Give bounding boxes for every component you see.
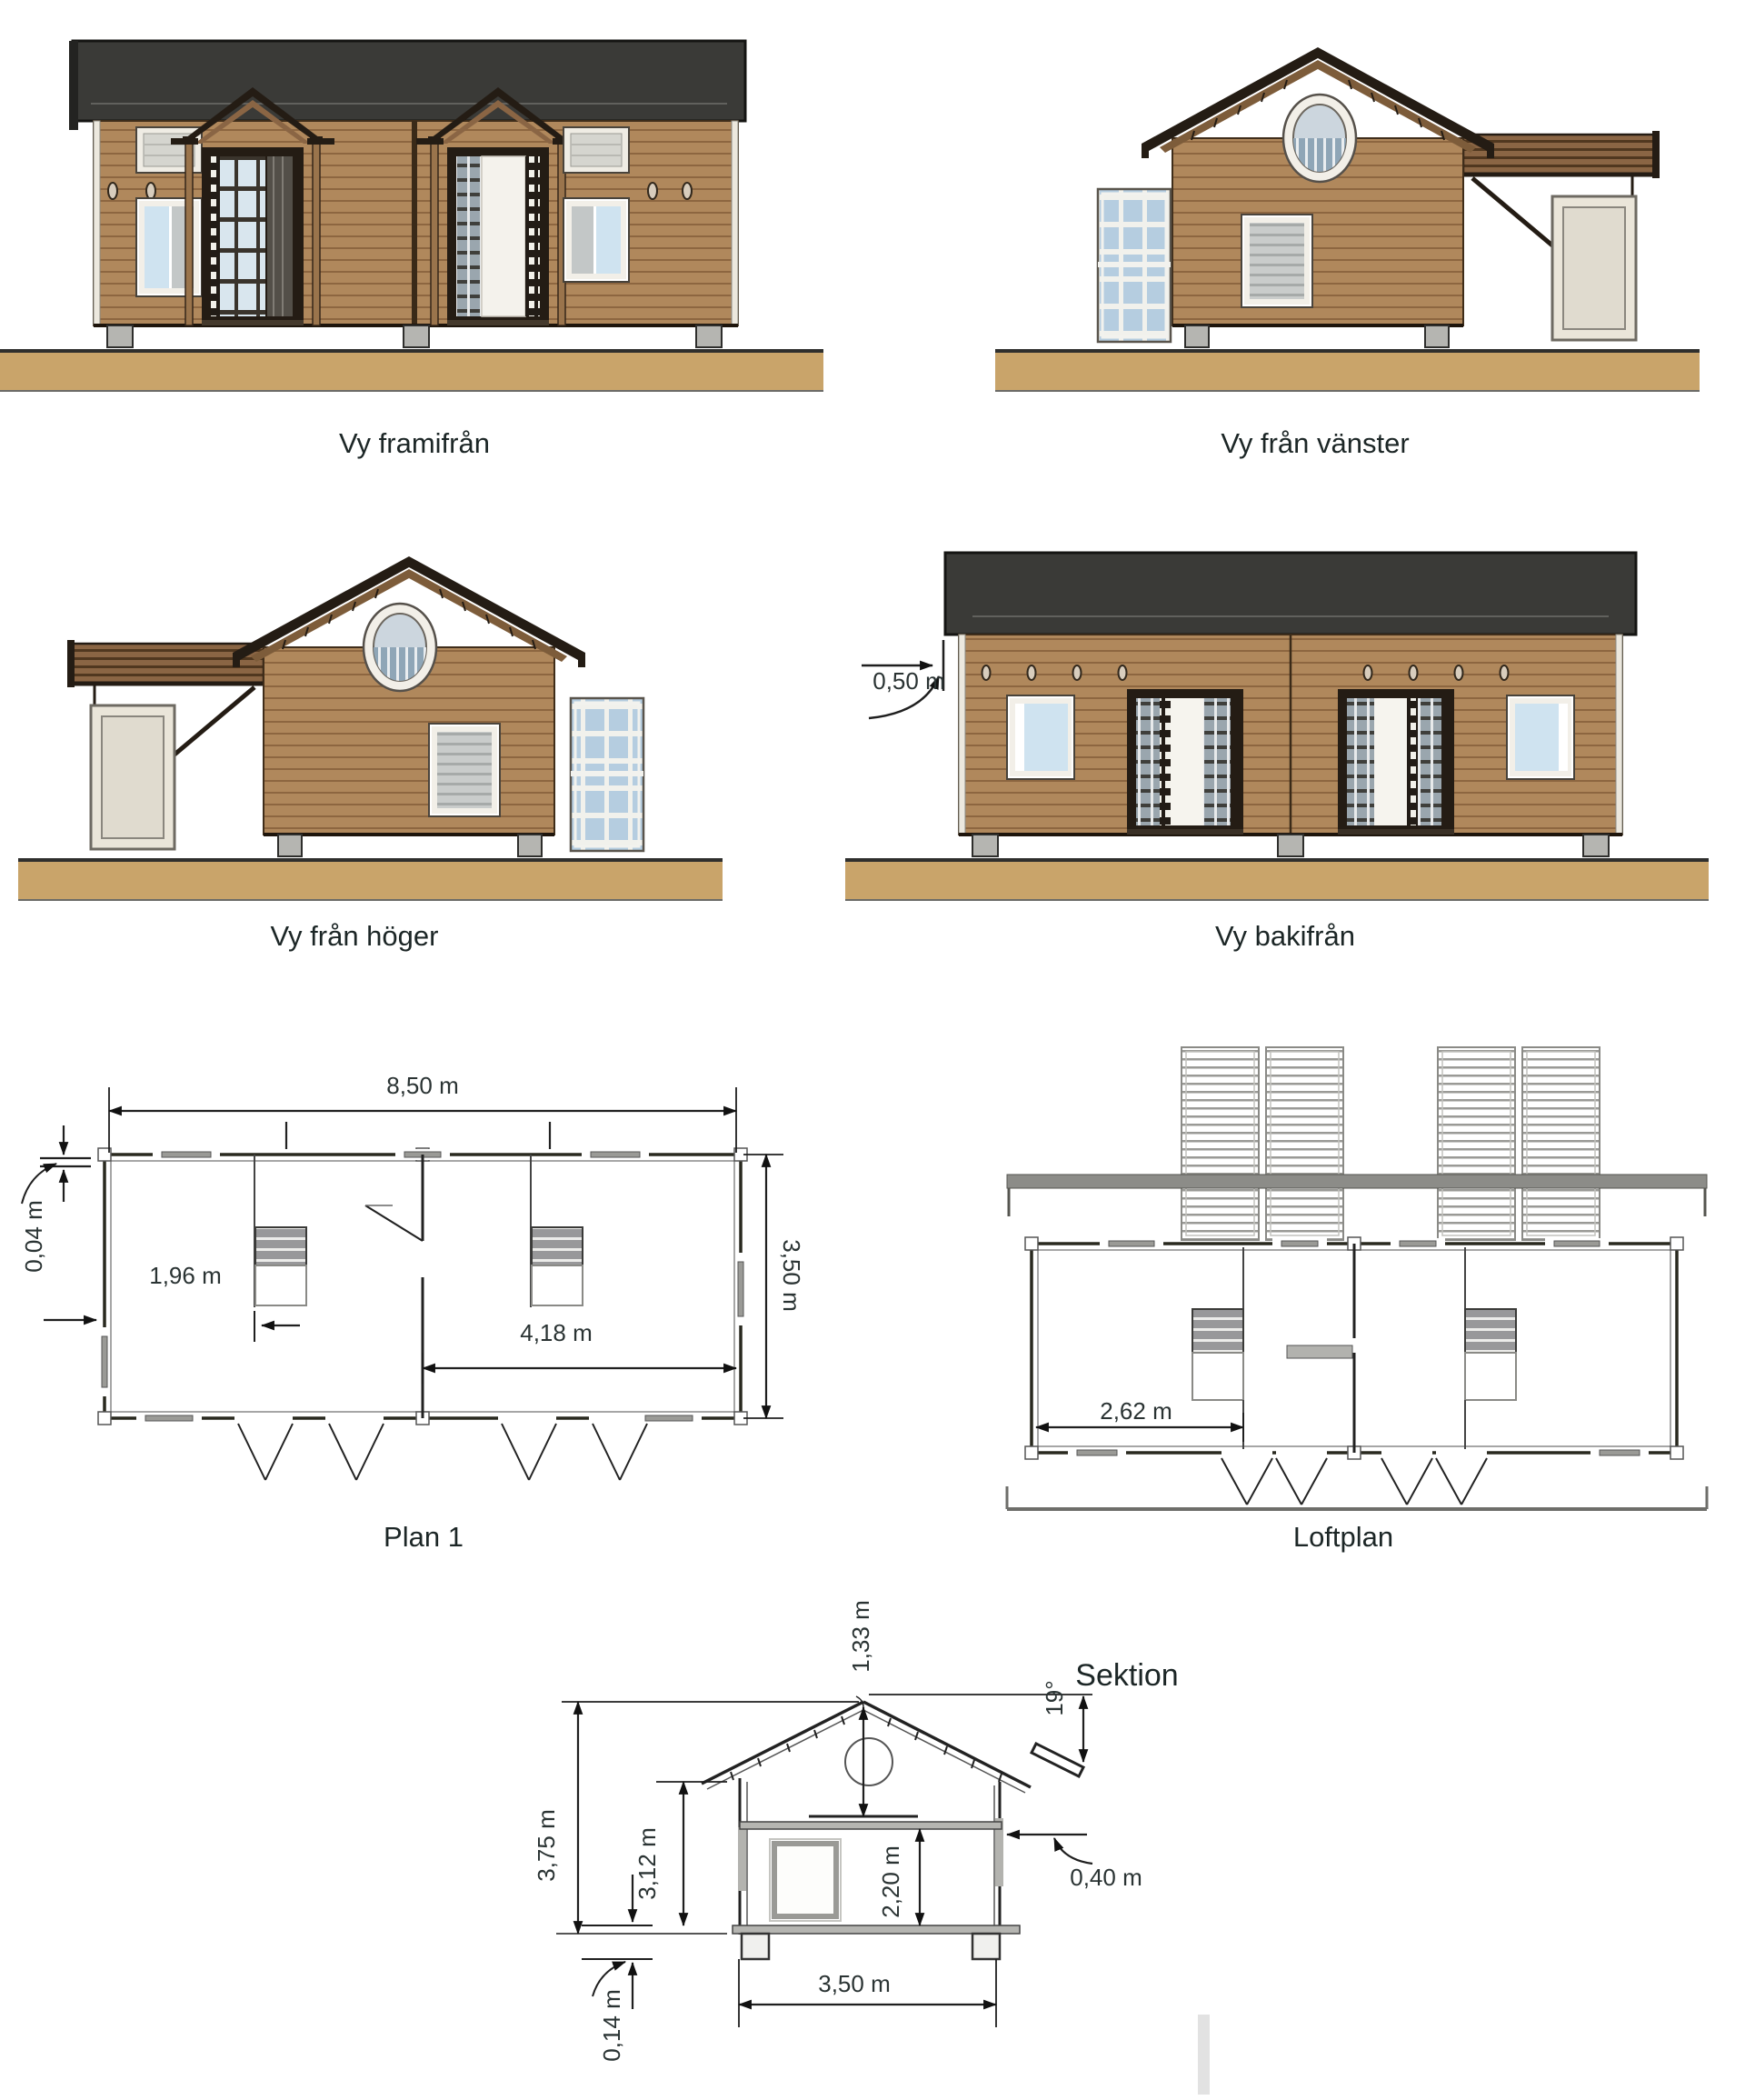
right-open-door bbox=[91, 705, 174, 849]
left-view-drawing bbox=[982, 36, 1745, 409]
loft-width-dimension: 2,62 m bbox=[1072, 1398, 1200, 1424]
back-view-drawing bbox=[836, 545, 1745, 918]
scan-artifact bbox=[1198, 2015, 1210, 2095]
back-view-label: Vy bakifrån bbox=[1140, 920, 1431, 953]
front-window-right bbox=[563, 198, 629, 282]
right-trellis-panel bbox=[571, 698, 643, 851]
section-roof bbox=[702, 1702, 1083, 1793]
section-round-window bbox=[845, 1738, 892, 1785]
loft-pergola-panels bbox=[1182, 1047, 1600, 1240]
right-view-drawing bbox=[18, 545, 745, 918]
back-glazed-door-right bbox=[1338, 689, 1454, 835]
loft-deck-rail-top bbox=[1007, 1175, 1707, 1216]
loft-deck-rail-bottom bbox=[1007, 1486, 1707, 1509]
left-open-door bbox=[1552, 196, 1636, 340]
plan1-depth-dimension: 3,50 m bbox=[779, 1212, 804, 1339]
front-transom-window-right bbox=[563, 127, 629, 173]
loftplan-label: Loftplan bbox=[1198, 1521, 1489, 1554]
loft-door-swings bbox=[1221, 1458, 1487, 1505]
section-width-dimension: 3,50 m bbox=[791, 1971, 918, 1996]
back-window-left bbox=[1007, 695, 1074, 779]
right-footings bbox=[278, 835, 542, 856]
back-roof bbox=[945, 553, 1636, 635]
right-ground bbox=[18, 860, 723, 900]
plan1-total-width-dimension: 8,50 m bbox=[359, 1073, 486, 1098]
plan1-right-section-dimension: 4,18 m bbox=[493, 1320, 620, 1345]
left-footings bbox=[1185, 325, 1449, 347]
back-footings bbox=[972, 835, 1609, 856]
plan1-label: Plan 1 bbox=[278, 1521, 569, 1554]
right-oval-window bbox=[364, 604, 436, 691]
front-ground bbox=[0, 351, 823, 391]
section-total-height-dimension: 3,75 m bbox=[533, 1782, 559, 1909]
section-overhang-dimension: 0,40 m bbox=[1042, 1865, 1170, 1890]
left-view-label: Vy från vänster bbox=[1170, 427, 1461, 460]
back-glazed-door-left bbox=[1127, 689, 1243, 835]
plan1-door-swings bbox=[238, 1424, 647, 1480]
section-ridge-dimension: 1,33 m bbox=[848, 1573, 873, 1700]
front-elevation-label: Vy framifrån bbox=[269, 427, 560, 460]
right-view-label: Vy från höger bbox=[209, 920, 500, 953]
loftplan-drawing bbox=[963, 1036, 1745, 1545]
section-base-dimension: 0,14 m bbox=[599, 1962, 624, 2089]
front-elevation-drawing bbox=[0, 36, 836, 409]
drawing-sheet: Vy framifrån bbox=[0, 0, 1745, 2100]
plan1-drawing bbox=[0, 1055, 854, 1573]
section-label: Sektion bbox=[982, 1658, 1272, 1694]
front-door-right bbox=[447, 147, 549, 325]
section-roof-angle-dimension: 19° bbox=[1042, 1635, 1067, 1762]
plan1-left-section-dimension: 1,96 m bbox=[122, 1263, 249, 1288]
left-trellis-panel bbox=[1098, 189, 1171, 342]
section-interior-height-dimension: 2,20 m bbox=[878, 1818, 903, 1945]
section-loft-floor bbox=[740, 1816, 1002, 1829]
front-footings bbox=[107, 325, 722, 347]
left-ground bbox=[995, 351, 1700, 391]
left-window bbox=[1241, 215, 1312, 307]
back-overhang-dimension: 0,50 m bbox=[845, 668, 972, 694]
front-door-left bbox=[202, 147, 304, 325]
front-roof bbox=[69, 41, 745, 130]
left-oval-window bbox=[1283, 95, 1356, 182]
section-floor-and-footings bbox=[733, 1925, 1020, 1959]
back-ground bbox=[845, 860, 1709, 900]
plan1-wall-offset-dimension: 0,04 m bbox=[21, 1173, 46, 1300]
right-window bbox=[429, 724, 500, 816]
back-window-right bbox=[1507, 695, 1574, 779]
section-eave-height-dimension: 3,12 m bbox=[634, 1800, 660, 1927]
section-window bbox=[770, 1839, 841, 1921]
